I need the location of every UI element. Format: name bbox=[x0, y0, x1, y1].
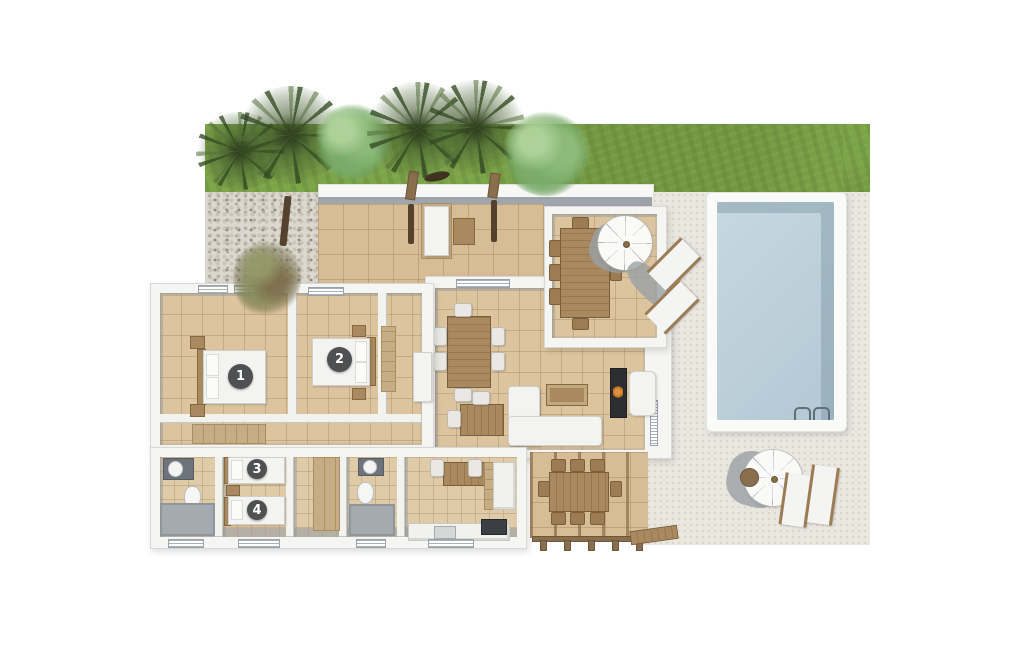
kitchen-cooktop bbox=[481, 519, 507, 535]
bedroom-1-marker: 1 bbox=[228, 364, 253, 389]
bedroom-2-marker-label: 2 bbox=[335, 352, 344, 367]
courtyard-chair bbox=[549, 264, 561, 281]
outdoor-chair bbox=[610, 481, 622, 497]
kitchen-window bbox=[428, 539, 474, 548]
terrace-daybed bbox=[424, 206, 449, 256]
bedroom1-wardrobe bbox=[192, 424, 266, 444]
outdoor-chair bbox=[590, 512, 605, 525]
bathroom2-window bbox=[356, 539, 386, 548]
pergola-post bbox=[540, 540, 547, 551]
kitchen-cabinet bbox=[493, 462, 516, 510]
outdoor-dining-table bbox=[549, 472, 609, 512]
swimming-pool bbox=[717, 202, 834, 420]
laundry-unit bbox=[413, 352, 432, 402]
terrace-side-table bbox=[453, 218, 475, 245]
dining-chair bbox=[491, 327, 505, 346]
bedroom2-window bbox=[308, 287, 344, 296]
kitchen-chair bbox=[430, 459, 444, 477]
living-room-window bbox=[456, 279, 510, 288]
deck-side-table bbox=[740, 468, 759, 487]
kitchen-chair bbox=[468, 459, 482, 477]
armchair bbox=[629, 371, 656, 416]
bedroom-2-marker: 2 bbox=[327, 347, 352, 372]
bed2-pillow bbox=[355, 341, 367, 362]
outdoor-chair bbox=[538, 481, 550, 497]
dining-table bbox=[447, 316, 491, 388]
palm-trunk bbox=[408, 204, 414, 244]
bed-3-marker: 3 bbox=[247, 459, 267, 479]
partition-wall bbox=[339, 457, 347, 537]
pergola-post bbox=[564, 540, 571, 551]
nightstand bbox=[190, 404, 205, 417]
nightstand bbox=[352, 325, 366, 337]
twin-room-window bbox=[238, 539, 280, 548]
bed-4-marker-label: 4 bbox=[252, 503, 261, 518]
bathroom1-window bbox=[168, 539, 204, 548]
bedroom-1-marker-label: 1 bbox=[236, 369, 245, 384]
outdoor-chair bbox=[551, 512, 566, 525]
floor-plan-canvas: 1 2 3 4 bbox=[0, 0, 1024, 652]
bed2-pillow bbox=[355, 362, 367, 383]
partition-wall bbox=[288, 293, 297, 420]
outdoor-chair bbox=[590, 459, 605, 472]
dining-chair bbox=[454, 388, 472, 402]
bed-3-marker-label: 3 bbox=[252, 462, 261, 477]
outdoor-chair bbox=[551, 459, 566, 472]
bed1-pillow bbox=[206, 377, 219, 399]
parasol-pole bbox=[623, 241, 630, 248]
partition-wall bbox=[286, 457, 294, 537]
courtyard-chair bbox=[572, 217, 589, 229]
partition-wall bbox=[215, 457, 223, 537]
desk bbox=[460, 404, 504, 436]
pergola-post bbox=[612, 540, 619, 551]
dining-chair bbox=[433, 352, 447, 371]
nightstand bbox=[190, 336, 205, 349]
outdoor-chair bbox=[570, 459, 585, 472]
kitchen-sink bbox=[434, 526, 456, 539]
bed4-pillow bbox=[231, 500, 243, 520]
bed-4-marker: 4 bbox=[247, 500, 267, 520]
bathroom1-shower bbox=[160, 503, 215, 536]
bathroom2-shower bbox=[349, 504, 395, 536]
pergola-post bbox=[588, 540, 595, 551]
bedroom1-window bbox=[198, 285, 228, 294]
bed1-pillow bbox=[206, 354, 219, 376]
outdoor-chair bbox=[570, 512, 585, 525]
partition-wall bbox=[397, 457, 405, 537]
pool-ladder bbox=[794, 407, 811, 420]
bathroom2-sink bbox=[363, 460, 377, 474]
hall-wardrobe bbox=[313, 457, 340, 531]
courtyard-chair bbox=[549, 240, 561, 257]
desk-chair bbox=[472, 391, 490, 405]
pool-ladder bbox=[813, 407, 830, 420]
nightstand bbox=[226, 485, 240, 496]
palm-trunk bbox=[491, 200, 497, 242]
courtyard-chair bbox=[549, 288, 561, 305]
sofa bbox=[508, 416, 602, 446]
courtyard-chair bbox=[572, 318, 589, 330]
dining-chair bbox=[454, 303, 472, 317]
nightstand bbox=[352, 388, 366, 400]
hallway-closet bbox=[381, 326, 396, 392]
dining-chair bbox=[433, 327, 447, 346]
deciduous-tree bbox=[502, 112, 590, 196]
bathroom1-sink bbox=[168, 461, 183, 477]
dining-chair bbox=[491, 352, 505, 371]
coffee-table bbox=[546, 384, 588, 406]
bed3-pillow bbox=[231, 460, 243, 480]
garden-shrub bbox=[233, 237, 301, 319]
deck-parasol-pole bbox=[771, 476, 778, 483]
desk-chair bbox=[447, 410, 461, 428]
bathroom2-toilet bbox=[357, 482, 374, 504]
fireplace-fire bbox=[613, 386, 623, 398]
